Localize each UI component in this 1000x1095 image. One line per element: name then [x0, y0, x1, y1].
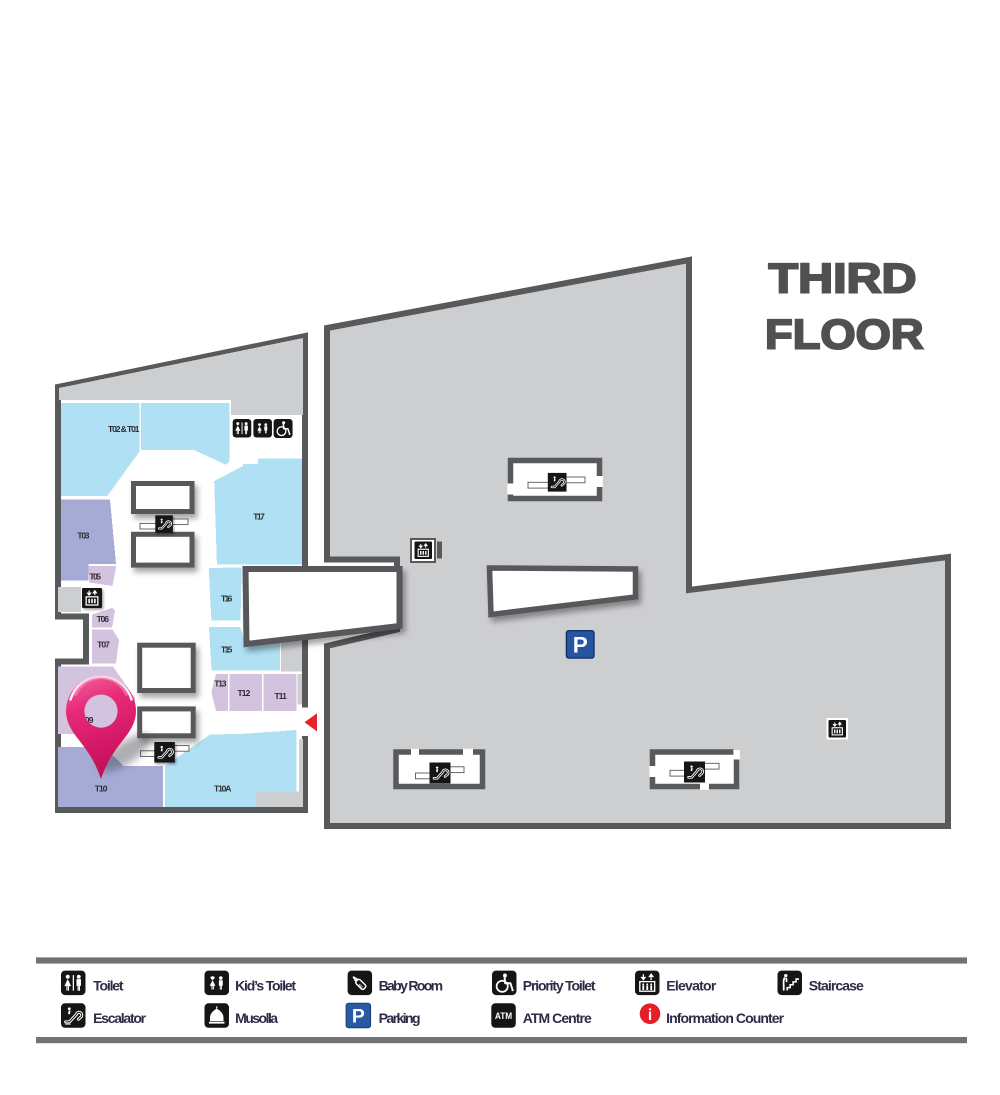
svg-text:T06: T06 — [97, 614, 110, 624]
svg-text:T16: T16 — [221, 594, 233, 604]
svg-text:T12: T12 — [238, 688, 251, 698]
svg-text:T10A: T10A — [214, 784, 231, 794]
svg-text:T17: T17 — [253, 512, 265, 522]
svg-text:Escalator: Escalator — [93, 1010, 147, 1026]
svg-text:Parking: Parking — [379, 1010, 421, 1026]
svg-text:ATM Centre: ATM Centre — [523, 1010, 592, 1026]
svg-text:Baby Room: Baby Room — [379, 978, 444, 994]
svg-text:Kid’s Toilet: Kid’s Toilet — [235, 978, 296, 994]
svg-text:Staircase: Staircase — [809, 978, 864, 994]
svg-text:Information Counter: Information Counter — [666, 1010, 785, 1026]
svg-text:T02 & T01: T02 & T01 — [108, 424, 140, 434]
svg-text:T03: T03 — [77, 531, 89, 541]
svg-text:T10: T10 — [95, 784, 108, 794]
svg-text:THIRD: THIRD — [769, 255, 917, 302]
svg-text:T13: T13 — [214, 679, 227, 689]
svg-text:T07: T07 — [97, 640, 110, 650]
svg-text:FLOOR: FLOOR — [765, 311, 924, 358]
svg-text:P: P — [573, 633, 588, 658]
svg-text:Elevator: Elevator — [666, 978, 717, 994]
svg-text:Toilet: Toilet — [93, 978, 124, 994]
svg-text:T11: T11 — [275, 691, 288, 701]
svg-text:Musolla: Musolla — [235, 1010, 278, 1026]
svg-text:i: i — [648, 1007, 652, 1024]
svg-text:T05: T05 — [90, 572, 102, 582]
svg-text:T15: T15 — [221, 644, 233, 654]
svg-text:Priority Toilet: Priority Toilet — [523, 978, 596, 994]
